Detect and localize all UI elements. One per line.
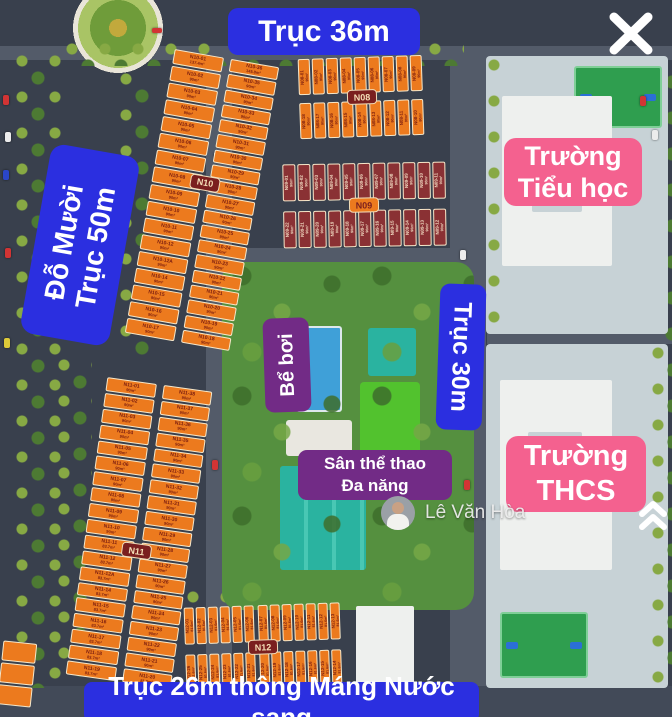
lot-group: N12-0781.6m² N12-0881.6m² N12-0981.6m² N… (258, 602, 341, 642)
lot: N09-1490m² (403, 209, 417, 246)
car (5, 248, 11, 258)
double-chevron-up-icon[interactable] (637, 496, 669, 532)
lot: N08-1090m² (411, 99, 424, 135)
lot: N08-0590m² (354, 57, 367, 93)
secondary-school-line2: THCS (537, 474, 616, 509)
lot-fragment (0, 684, 33, 707)
car (152, 28, 162, 33)
car (5, 132, 11, 142)
lot-row: N08-1890m² N08-1790m² N08-1690m² N08-159… (299, 99, 426, 139)
lot: N12-0381.6m² (208, 607, 219, 644)
label-truc-30m: Trục 30m (435, 283, 486, 431)
lot: N12-0981.6m² (282, 604, 293, 641)
lot-group: N09-2290m² N09-2190m² N09-2090m² N09-199… (283, 210, 357, 248)
lot: N12-0781.6m² (258, 605, 269, 642)
lot: N08-0290m² (312, 58, 325, 94)
lot: N08-0790m² (382, 56, 395, 92)
block-n09: N09-0190m² N09-0290m² N09-0390m² N09-049… (282, 162, 445, 249)
lot: N09-1590m² (388, 209, 402, 246)
car (3, 170, 9, 180)
primary-school-line1: Trường (524, 140, 621, 172)
block-n08: N08-0190m² N08-0290m² N08-0390m² N08-049… (298, 55, 427, 139)
close-icon (604, 10, 656, 58)
car (4, 338, 10, 348)
sports-line1: Sân thể thao (324, 453, 426, 475)
avatar (381, 496, 415, 530)
car (640, 96, 646, 106)
car (460, 250, 466, 260)
lot: N12-0281.6m² (196, 607, 207, 644)
block-badge-n08: N08 (347, 89, 378, 105)
lot: N08-1490m² (355, 101, 368, 137)
lot: N12-0481.6m² (220, 606, 231, 643)
lot: N09-0290m² (297, 164, 311, 201)
lot-group: N09-1790m² N09-1690m² N09-1590m² N09-149… (358, 209, 447, 248)
lot: N09-1390m² (418, 209, 432, 246)
lot: N12-1081.6m² (294, 604, 305, 641)
lot: N12-1381.6m² (329, 602, 340, 639)
goal-marker (506, 642, 518, 649)
lot: N09-1790m² (358, 210, 372, 247)
watermark: Lê Văn Hòa (381, 496, 525, 530)
goal-marker (570, 642, 582, 649)
lot: N09-2290m² (283, 211, 297, 248)
lot: N08-1290m² (383, 100, 396, 136)
lot: N09-1190m² (432, 162, 446, 199)
roundabout (68, 0, 168, 78)
close-button[interactable] (604, 10, 656, 58)
car (464, 480, 470, 490)
lot: N12-0581.6m² (232, 606, 243, 643)
block-badge-n12: N12 (248, 639, 279, 655)
lot: N09-2090m² (313, 211, 327, 248)
sports-line2: Đa năng (341, 475, 408, 497)
lot: N08-1690m² (327, 102, 340, 138)
lot: N09-1290m² (433, 209, 447, 246)
lot-fragment (0, 662, 35, 685)
lot: N09-2190m² (298, 211, 312, 248)
lot-group: N09-0190m² N09-0290m² N09-0390m² N09-049… (282, 163, 356, 201)
lot: N12-1281.6m² (318, 603, 329, 640)
lot: N09-1890m² (343, 210, 357, 247)
school-field-bottom (500, 612, 588, 678)
lot: N08-0490m² (340, 57, 353, 93)
lot: N08-0190m² (298, 59, 311, 95)
sports-court (368, 328, 416, 376)
lot: N08-1590m² (341, 101, 354, 137)
label-truong-thcs: Trường THCS (506, 436, 646, 512)
lot: N09-0790m² (372, 163, 386, 200)
lot: N08-1190m² (397, 99, 410, 135)
label-truc-26m: Trục 26m thông Máng Nước sang (84, 682, 479, 717)
lot: N08-0890m² (396, 55, 409, 91)
lot: N08-0690m² (368, 56, 381, 92)
secondary-school-line1: Trường (524, 439, 628, 474)
watermark-name: Lê Văn Hòa (425, 502, 525, 524)
car (3, 95, 9, 105)
lot: N09-0890m² (387, 162, 401, 199)
lot: N12-0881.6m² (270, 604, 281, 641)
lot: N12-1181.6m² (306, 603, 317, 640)
central-park (222, 262, 474, 610)
lot-row: N09-0190m² N09-0290m² N09-0390m² N09-049… (282, 162, 445, 202)
lot: N12-0181.6m² (184, 607, 195, 644)
lot-group: N12-0181.6m² N12-0281.6m² N12-0381.6m² N… (184, 605, 255, 644)
lot: N08-0390m² (326, 58, 339, 94)
car (212, 460, 218, 470)
lot: N09-1990m² (328, 210, 342, 247)
lot: N08-1790m² (313, 102, 326, 138)
car (652, 130, 658, 140)
lot: N09-1690m² (373, 210, 387, 247)
label-be-boi: Bể bơi (262, 317, 311, 413)
lot: N09-0390m² (312, 164, 326, 201)
label-san-the-thao: Sân thể thao Đa năng (298, 450, 452, 500)
lot-fragment (1, 640, 37, 663)
label-truong-tieu-hoc: Trường Tiểu học (504, 138, 642, 206)
lot: N09-0690m² (357, 163, 371, 200)
lot: N09-0490m² (327, 163, 341, 200)
lot: N08-1390m² (369, 100, 382, 136)
lot-row: N12-0181.6m² N12-0281.6m² N12-0381.6m² N… (184, 602, 341, 644)
campus-top-trees (486, 56, 502, 334)
block-badge-n09: N09 (349, 197, 379, 213)
lot-row: N09-2290m² N09-2190m² N09-2090m² N09-199… (283, 209, 446, 249)
lot: N09-0590m² (342, 163, 356, 200)
master-plan-canvas: N10-01137.4m² N10-0290m² N10-0390m² N10-… (0, 0, 672, 717)
lot-group: N09-0690m² N09-0790m² N09-0890m² N09-099… (357, 162, 446, 201)
lot: N08-1890m² (299, 103, 312, 139)
lot: N09-0990m² (402, 162, 416, 199)
lot: N09-1090m² (417, 162, 431, 199)
lot: N12-0681.6m² (244, 605, 255, 642)
lot: N09-0190m² (282, 164, 296, 201)
lot: N08-0990m² (410, 55, 423, 91)
label-truc-36m: Trục 36m (228, 8, 420, 55)
primary-school-line2: Tiểu học (518, 172, 629, 204)
